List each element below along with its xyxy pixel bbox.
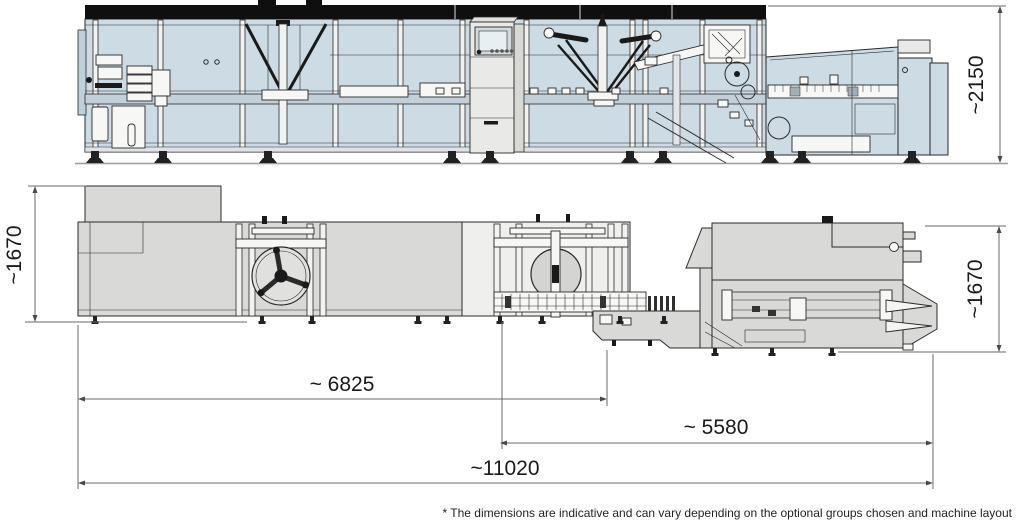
dim-width-right-label: ~1670 bbox=[964, 260, 987, 319]
side-elevation-view bbox=[75, 0, 1008, 164]
turret-1 bbox=[236, 216, 326, 316]
plan-view bbox=[78, 186, 937, 356]
end-module-conveyor bbox=[768, 85, 898, 98]
dimension-width-left: ~1670 bbox=[3, 186, 38, 322]
plan-infeed-box bbox=[85, 186, 221, 222]
dim-length-total-label: ~11020 bbox=[470, 457, 539, 480]
dim-length-right-label: ~ 5580 bbox=[684, 416, 749, 439]
dim-width-left-label: ~1670 bbox=[3, 226, 26, 285]
dim-length-main-label: ~ 6825 bbox=[310, 373, 375, 396]
hmi-screen bbox=[479, 31, 507, 51]
machine-dimension-drawing: ~2150 ~1670 ~1670 ~ 6825 ~ 5 bbox=[0, 0, 1024, 527]
footnote: * The dimensions are indicative and can … bbox=[443, 506, 1013, 520]
dimension-length-main: ~ 6825 bbox=[78, 373, 607, 402]
plan-end-machine bbox=[686, 216, 937, 350]
hmi-knob bbox=[477, 50, 482, 55]
dim-height-label: ~2150 bbox=[965, 56, 988, 115]
dimension-length-right: ~ 5580 bbox=[500, 416, 933, 446]
hmi-control-panel bbox=[470, 17, 524, 153]
dimension-length-total: ~11020 bbox=[78, 457, 933, 486]
end-module bbox=[766, 40, 948, 155]
top-cable-tray bbox=[85, 0, 766, 19]
dimension-width-right: ~1670 bbox=[964, 226, 1002, 352]
dimension-height: ~2150 bbox=[965, 6, 1003, 163]
drawing-canvas: ~2150 ~1670 ~1670 ~ 6825 ~ 5 bbox=[0, 0, 1024, 527]
